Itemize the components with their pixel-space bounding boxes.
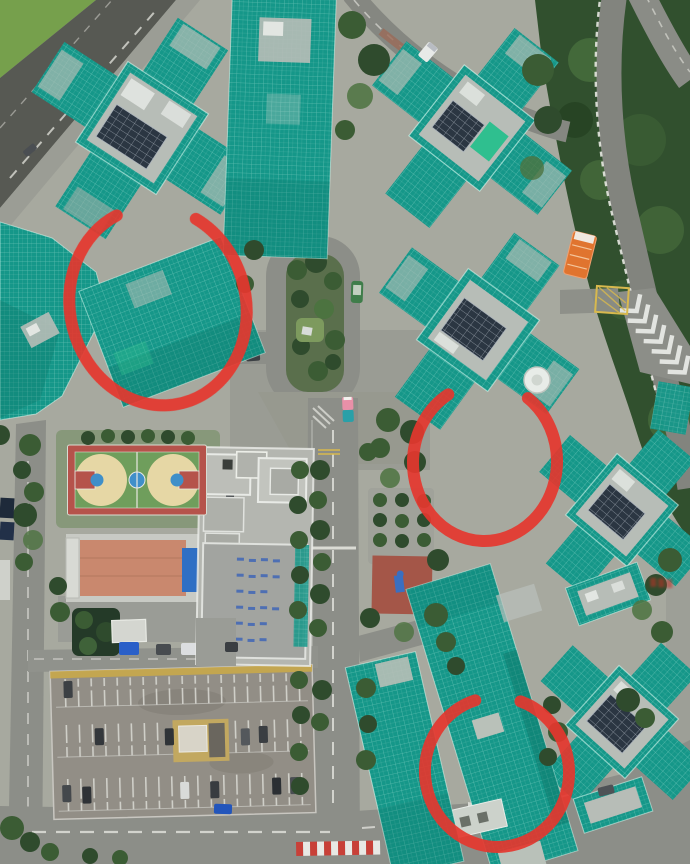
parking-bays xyxy=(57,722,170,757)
gray-car xyxy=(156,644,171,655)
aerial-photo xyxy=(0,0,690,864)
solar-heater xyxy=(0,498,15,519)
carpark-deck xyxy=(50,665,316,820)
annex-roof xyxy=(66,538,79,598)
aerial-photo-canvas xyxy=(0,0,690,864)
basketball-court xyxy=(68,445,207,515)
junction-connector xyxy=(560,288,620,314)
white-van xyxy=(181,643,197,655)
solar-heater xyxy=(0,522,14,541)
white-canopy xyxy=(112,619,147,642)
building-sliver xyxy=(0,560,10,600)
green-minibus xyxy=(351,281,364,303)
deck-ramp xyxy=(209,723,226,757)
roof-vent xyxy=(223,459,233,469)
blue-van xyxy=(119,642,139,655)
loop-island-garden xyxy=(286,251,345,392)
terracotta-roof-building xyxy=(66,534,202,602)
dark-car xyxy=(225,642,238,652)
pavilion-roof xyxy=(301,326,312,336)
blue-car xyxy=(214,804,232,815)
blue-roof-patch xyxy=(182,548,198,592)
red-white-barrier xyxy=(296,841,380,856)
scaffold-strip xyxy=(293,545,309,647)
satellite-dish-hub xyxy=(532,375,543,386)
scaffolded-slab-top-center xyxy=(223,0,336,259)
pink-teal-truck xyxy=(342,397,354,422)
